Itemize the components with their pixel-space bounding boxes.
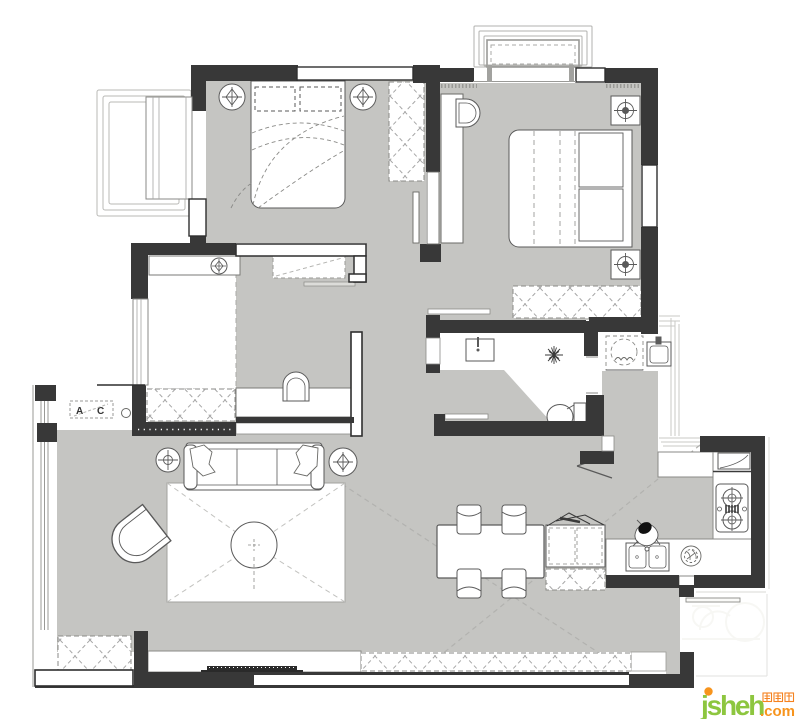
svg-text:.com: .com: [760, 703, 795, 719]
svg-text:A: A: [76, 406, 83, 417]
